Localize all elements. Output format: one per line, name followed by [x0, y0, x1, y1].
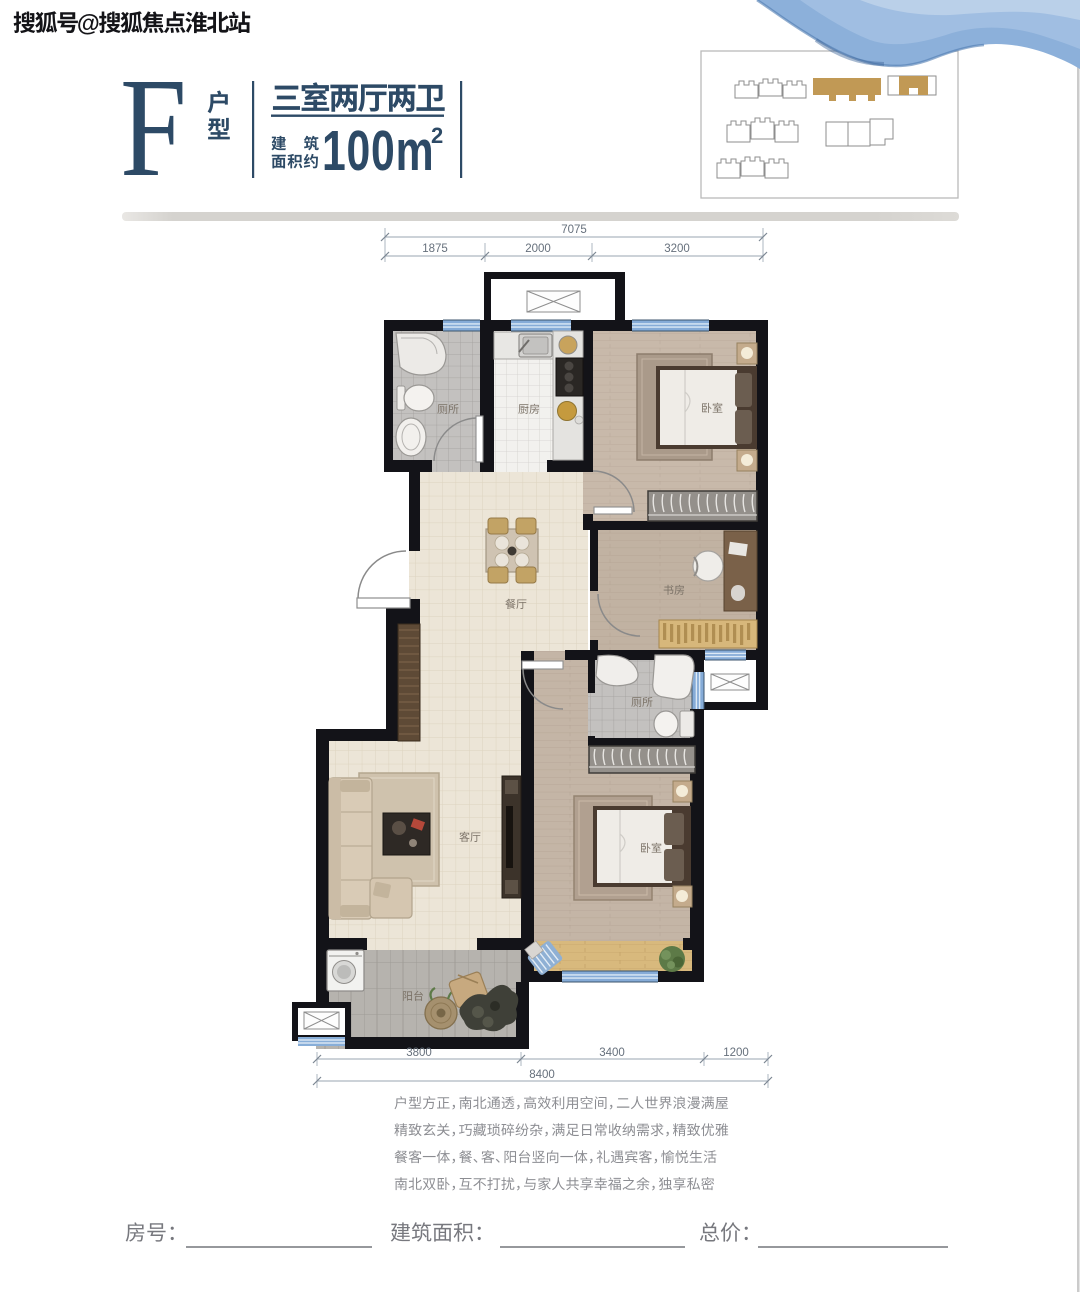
- svg-text:F: F: [120, 50, 187, 207]
- svg-text:3800: 3800: [406, 1047, 432, 1059]
- svg-text:3200: 3200: [664, 243, 690, 255]
- svg-text:100m: 100m: [322, 118, 434, 182]
- svg-text:2: 2: [431, 123, 443, 148]
- svg-text:7075: 7075: [561, 224, 587, 236]
- svg-text:1875: 1875: [422, 243, 448, 255]
- svg-text:2000: 2000: [525, 243, 551, 255]
- svg-text:1200: 1200: [723, 1047, 749, 1059]
- svg-text:8400: 8400: [529, 1069, 555, 1081]
- svg-text:@: @: [77, 10, 100, 36]
- svg-text:3400: 3400: [599, 1047, 625, 1059]
